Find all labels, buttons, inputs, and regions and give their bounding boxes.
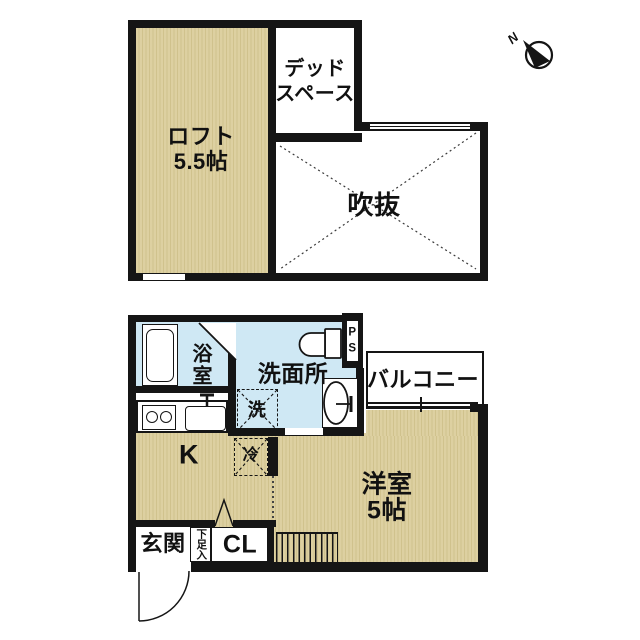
wall-segment xyxy=(470,402,478,412)
wall-segment xyxy=(128,520,215,527)
wall-segment xyxy=(128,20,362,28)
wall-segment xyxy=(128,315,363,322)
window-center-tick xyxy=(420,397,422,412)
window xyxy=(366,402,470,404)
loft-size-label: 5.5帖 xyxy=(174,151,229,173)
wall-segment xyxy=(354,20,362,131)
balcony-label: バルコニー xyxy=(367,369,479,391)
western-room-label: 洋室 xyxy=(361,473,412,498)
entrance-door-opening xyxy=(136,562,191,572)
closet-label: CL xyxy=(223,533,257,558)
wall-segment xyxy=(128,315,136,572)
washroom-door-opening xyxy=(285,428,323,436)
window xyxy=(366,407,470,409)
kitchen-label: K xyxy=(179,442,199,469)
stove-burner-icon xyxy=(160,411,172,423)
kitchen-sink-icon xyxy=(185,406,226,431)
wall-segment xyxy=(128,20,136,281)
dead-space-label: デッド xyxy=(284,59,346,79)
compass-icon xyxy=(523,40,552,68)
entrance-door-arc xyxy=(139,571,189,621)
pipe-space-label: S xyxy=(348,343,356,355)
wall-segment xyxy=(268,20,276,273)
wall-segment xyxy=(268,437,278,476)
bathroom-label: 浴室 xyxy=(190,343,210,387)
dead-space-label: スペース xyxy=(275,84,355,104)
window xyxy=(368,129,470,131)
window xyxy=(368,122,470,124)
washroom-label: 洗面所 xyxy=(258,363,329,386)
compass-north-label: N xyxy=(505,30,521,46)
stairs xyxy=(276,532,338,562)
refrigerator-label: 冷 xyxy=(243,448,260,464)
wall-segment xyxy=(228,352,236,436)
loft-label: ロフト xyxy=(167,126,235,148)
western-room-size-label: 5帖 xyxy=(367,499,407,524)
window xyxy=(368,126,470,128)
atrium-label: 吹抜 xyxy=(347,192,400,218)
wall-segment xyxy=(478,404,488,572)
wall-segment xyxy=(268,133,362,142)
room-divider-dotted xyxy=(272,476,274,521)
pipe-space-label: P xyxy=(348,327,356,339)
floorplan-image: N ロフト 5.5帖 デッド スペース 吹抜 浴室 洗面所 洗 K 冷 P S … xyxy=(0,0,640,640)
washing-machine-label: 洗 xyxy=(248,401,267,419)
room-floor-fill xyxy=(366,410,478,436)
bathtub-inner xyxy=(146,329,174,382)
window xyxy=(143,273,185,281)
wall-segment xyxy=(136,386,236,393)
stove-burner-icon xyxy=(146,411,158,423)
shoe-cabinet-label: 下足入 xyxy=(196,528,207,560)
wall-segment xyxy=(480,122,488,281)
entrance-label: 玄関 xyxy=(140,533,185,555)
